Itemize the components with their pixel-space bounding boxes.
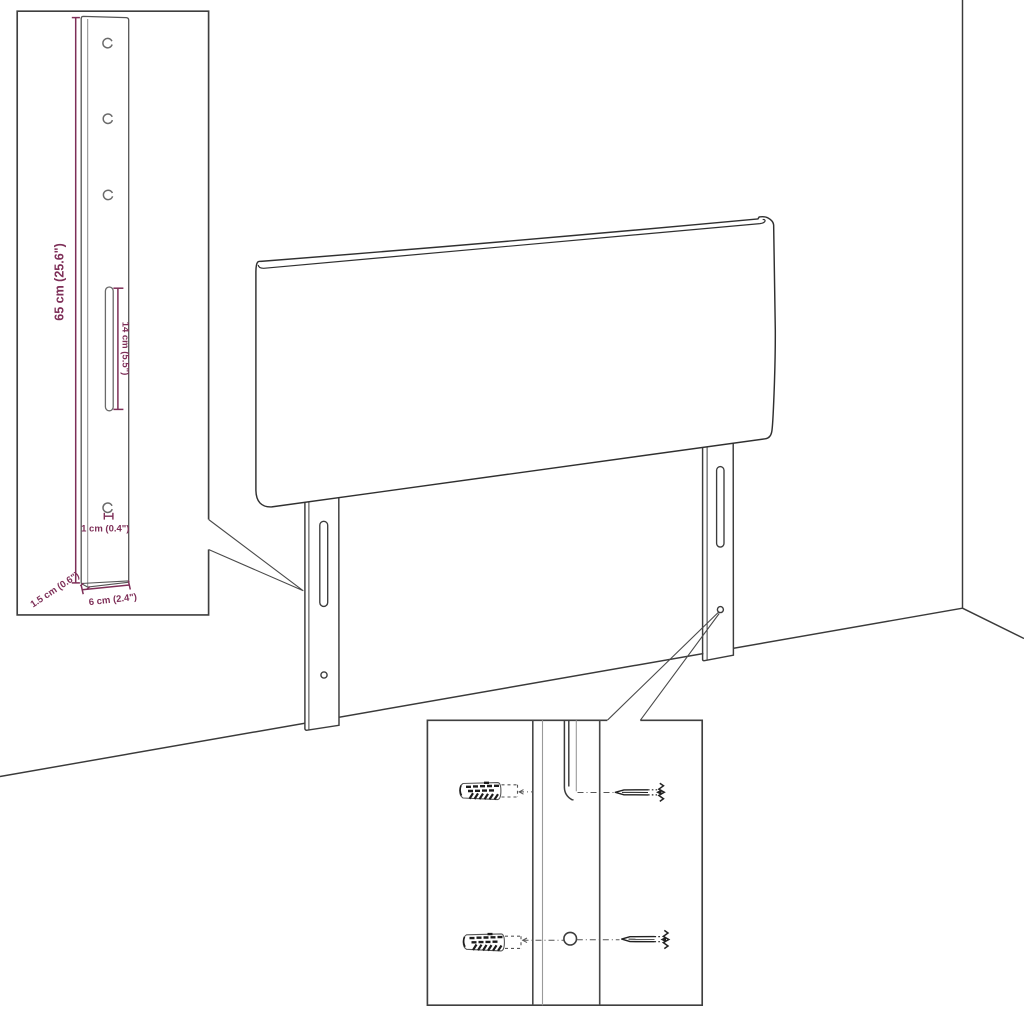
svg-text:14 cm (5.5"): 14 cm (5.5") [120,322,131,376]
svg-text:1 cm (0.4"): 1 cm (0.4") [81,524,129,535]
svg-text:65 cm (25.6"): 65 cm (25.6") [53,243,67,321]
